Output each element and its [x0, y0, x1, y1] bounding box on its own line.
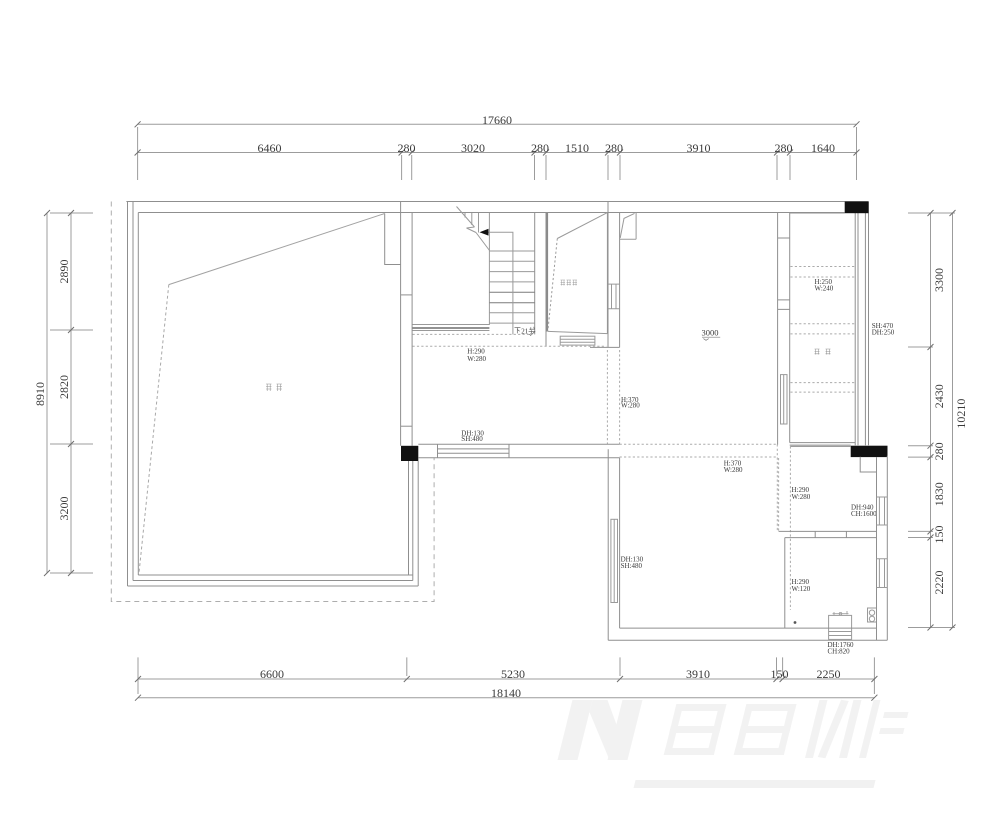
- svg-text:W:280: W:280: [467, 355, 486, 363]
- svg-text:1510: 1510: [565, 141, 589, 155]
- svg-text:18140: 18140: [491, 686, 521, 700]
- svg-text:W:280: W:280: [621, 401, 640, 409]
- svg-text:280: 280: [932, 442, 946, 460]
- svg-text:2250: 2250: [817, 667, 841, 681]
- svg-text:3300: 3300: [932, 268, 946, 292]
- svg-text:W:240: W:240: [815, 285, 834, 293]
- svg-text:DH:250: DH:250: [872, 329, 895, 337]
- svg-text:280: 280: [398, 141, 416, 155]
- svg-text:1640: 1640: [811, 141, 835, 155]
- svg-text:W:120: W:120: [792, 585, 811, 593]
- svg-text:6460: 6460: [258, 141, 282, 155]
- svg-text:W:280: W:280: [724, 466, 743, 474]
- svg-text:10210: 10210: [954, 399, 968, 429]
- svg-text:150: 150: [932, 526, 946, 544]
- svg-text:2430: 2430: [932, 384, 946, 408]
- svg-text:1830: 1830: [932, 482, 946, 506]
- svg-text:2890: 2890: [57, 260, 71, 284]
- svg-text:280: 280: [605, 141, 623, 155]
- svg-text:3910: 3910: [686, 667, 710, 681]
- svg-text:6600: 6600: [260, 667, 284, 681]
- svg-text:W:280: W:280: [792, 493, 811, 501]
- svg-text:2220: 2220: [932, 571, 946, 595]
- svg-text:SH:480: SH:480: [461, 435, 483, 443]
- svg-text:CH:820: CH:820: [828, 647, 851, 655]
- svg-text:5230: 5230: [501, 667, 525, 681]
- svg-text:2820: 2820: [57, 375, 71, 399]
- svg-text:8910: 8910: [33, 382, 47, 406]
- svg-text:3910: 3910: [687, 141, 711, 155]
- svg-text:3020: 3020: [461, 141, 485, 155]
- svg-text:17660: 17660: [482, 113, 512, 127]
- svg-text:280: 280: [775, 141, 793, 155]
- svg-text:150: 150: [771, 667, 789, 681]
- svg-text:3200: 3200: [57, 497, 71, 521]
- svg-text:280: 280: [531, 141, 549, 155]
- svg-text:SH:480: SH:480: [621, 562, 643, 570]
- svg-text:3000: 3000: [702, 327, 719, 337]
- svg-text:CH:1600: CH:1600: [851, 510, 877, 518]
